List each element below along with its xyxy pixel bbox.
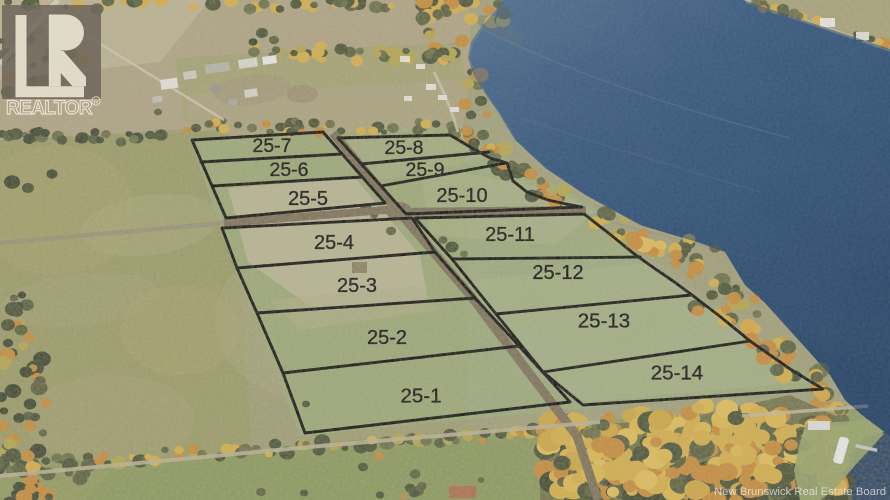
svg-text:REALTOR: REALTOR (6, 97, 92, 119)
svg-text:R: R (94, 99, 99, 106)
svg-text:New Brunswick Real Estate Boar: New Brunswick Real Estate Board (714, 486, 886, 498)
